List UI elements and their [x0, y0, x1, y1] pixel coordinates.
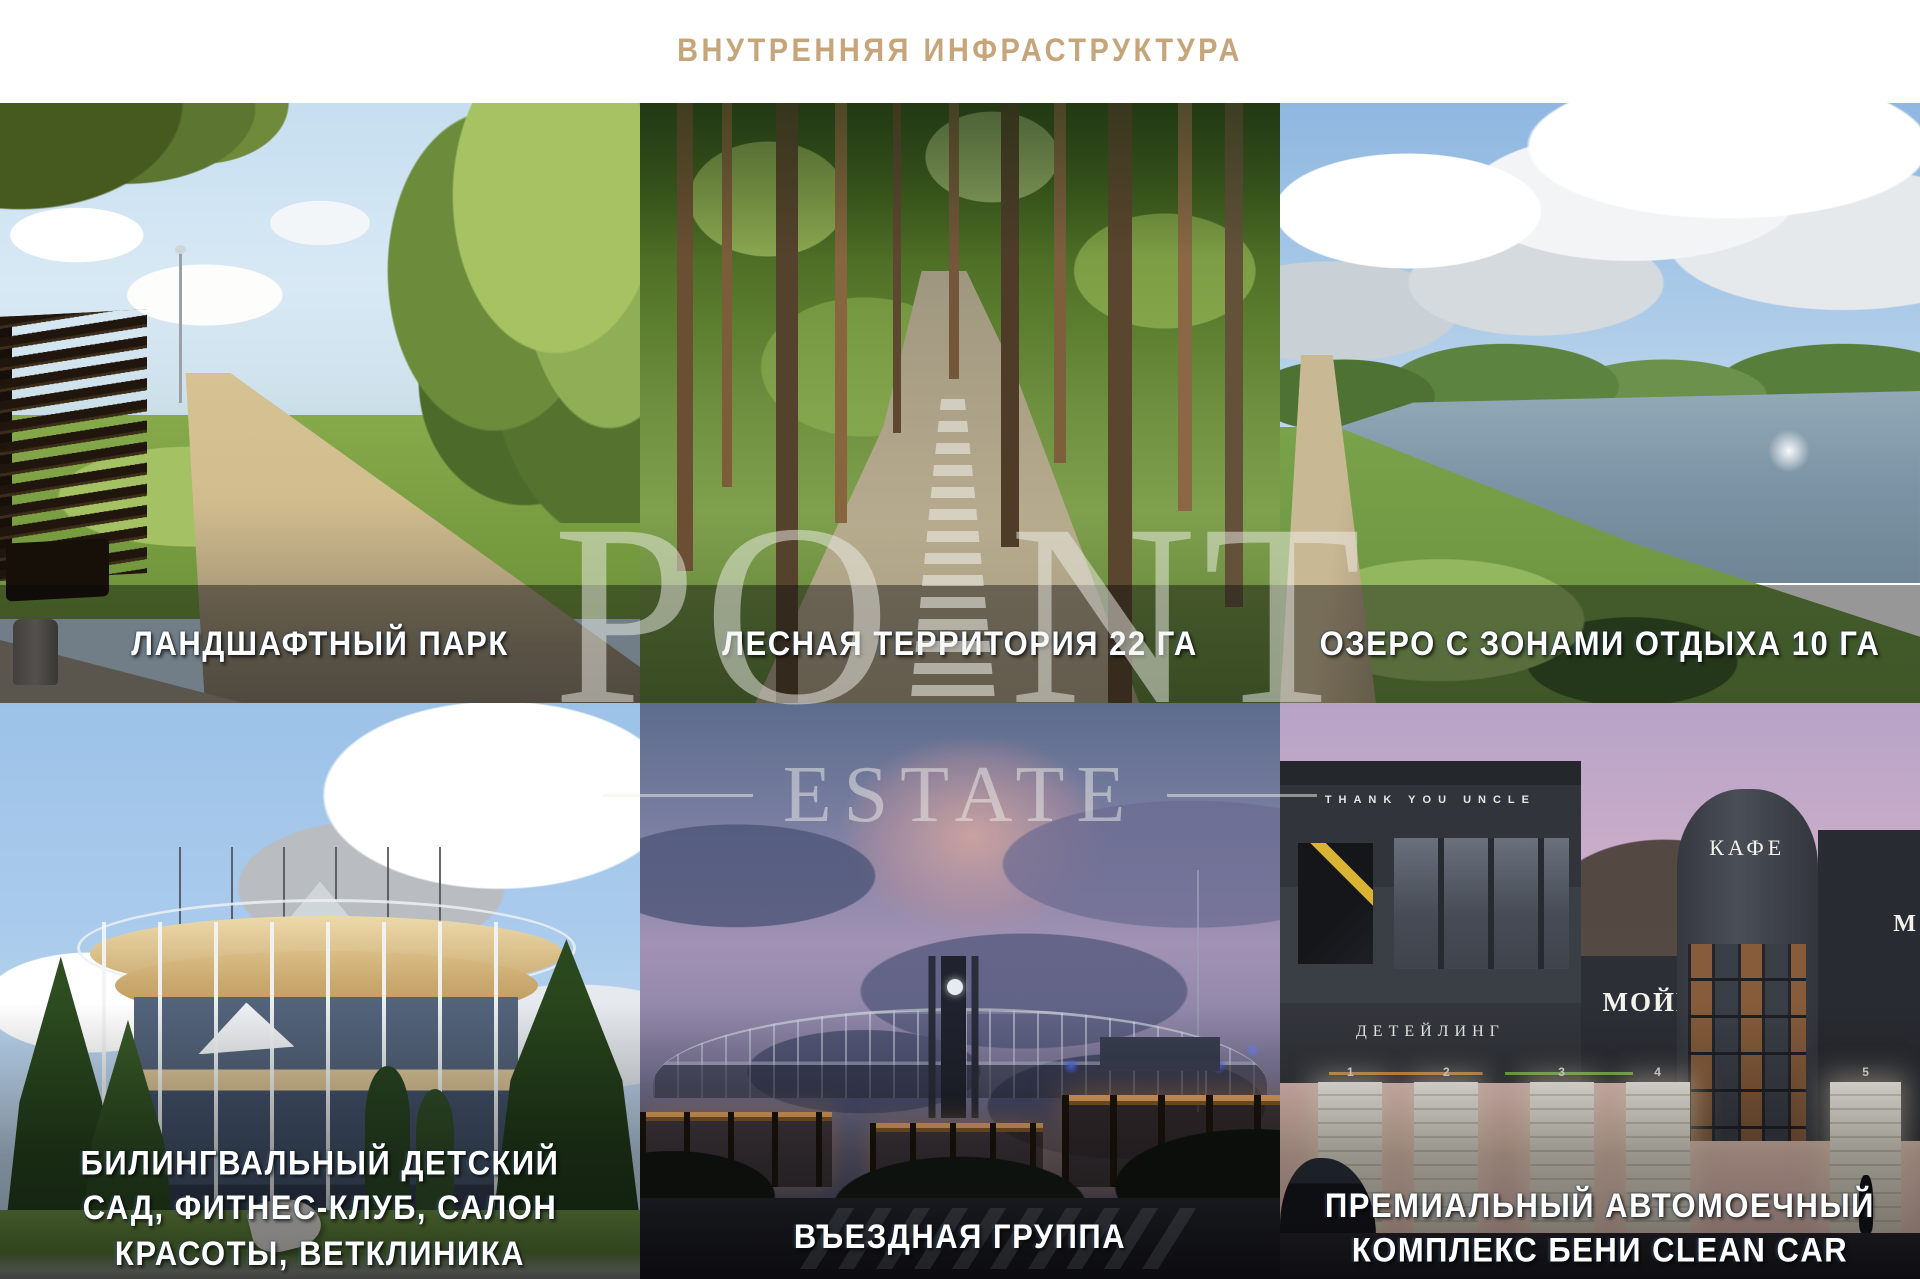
- tile-caption: ПРЕМИАЛЬНЫЙ АВТОМОЕЧНЫЙ КОМПЛЕКС БЕНИ CL…: [1280, 1188, 1920, 1269]
- tile-caption: ВЪЕЗДНАЯ ГРУППА: [640, 1217, 1280, 1257]
- right-sign: М: [1893, 911, 1916, 938]
- photo-grid: ЛАНДШАФТНЫЙ ПАРК ЛЕСНАЯ ТЕРРИТОРИЯ 22 ГА: [0, 103, 1920, 1279]
- carwash-left-building: THANK YOU UNCLE: [1280, 761, 1581, 1005]
- section-title: ВНУТРЕННЯЯ ИНФРАСТРУКТУРА: [677, 33, 1243, 70]
- tile-caption: ЛЕСНАЯ ТЕРРИТОРИЯ 22 ГА: [640, 585, 1280, 703]
- section-header: ВНУТРЕННЯЯ ИНФРАСТРУКТУРА: [0, 0, 1920, 103]
- building-contrail: [550, 784, 640, 786]
- caption-text: ЛЕСНАЯ ТЕРРИТОРИЯ 22 ГА: [722, 621, 1197, 666]
- caption-text: ЛАНДШАФТНЫЙ ПАРК: [131, 621, 509, 666]
- infrastructure-section: ВНУТРЕННЯЯ ИНФРАСТРУКТУРА ЛАНДШАФТНЫЙ ПА…: [0, 0, 1920, 1279]
- tile-kindergarten: БИЛИНГВАЛЬНЫЙ ДЕТСКИЙ САД, ФИТНЕС-КЛУБ, …: [0, 703, 640, 1279]
- tile-caption: БИЛИНГВАЛЬНЫЙ ДЕТСКИЙ САД, ФИТНЕС-КЛУБ, …: [0, 1148, 640, 1269]
- roof-sign: THANK YOU UNCLE: [1280, 794, 1581, 806]
- cafe-sign: КАФЕ: [1677, 835, 1818, 861]
- caption-text: ОЗЕРО С ЗОНАМИ ОТДЫХА 10 ГА: [1320, 621, 1881, 666]
- park-tree-canopy: [0, 103, 333, 343]
- lake-fountain: [1760, 421, 1818, 481]
- tile-landscape-park: ЛАНДШАФТНЫЙ ПАРК: [0, 103, 640, 703]
- caption-text: БИЛИНГВАЛЬНЫЙ ДЕТСКИЙ САД, ФИТНЕС-КЛУБ, …: [38, 1141, 603, 1276]
- caption-text: ВЪЕЗДНАЯ ГРУППА: [794, 1214, 1126, 1259]
- tile-entrance-group: ВЪЕЗДНАЯ ГРУППА: [640, 703, 1280, 1279]
- caption-text: ПРЕМИАЛЬНЫЙ АВТОМОЕЧНЫЙ КОМПЛЕКС БЕНИ CL…: [1318, 1184, 1883, 1274]
- park-pergola: [0, 309, 147, 581]
- tile-car-wash: THANK YOU UNCLE ДЕТЕЙЛИНГ МОЙКА КАФЕ М 1: [1280, 703, 1920, 1279]
- tile-caption: ОЗЕРО С ЗОНАМИ ОТДЫХА 10 ГА: [1280, 585, 1920, 703]
- tile-caption: ЛАНДШАФТНЫЙ ПАРК: [0, 585, 640, 703]
- tile-lake: ОЗЕРО С ЗОНАМИ ОТДЫХА 10 ГА: [1280, 103, 1920, 703]
- park-lamp-post: [179, 253, 182, 403]
- tile-forest-territory: ЛЕСНАЯ ТЕРРИТОРИЯ 22 ГА: [640, 103, 1280, 703]
